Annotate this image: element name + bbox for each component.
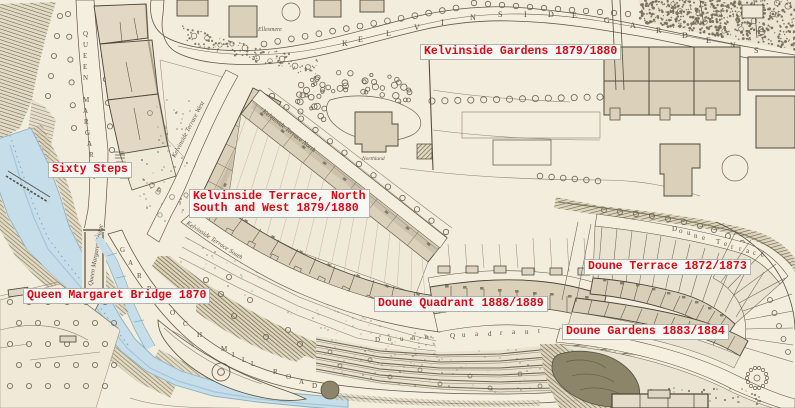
svg-text:D: D bbox=[375, 336, 380, 344]
svg-text:Ellesmere: Ellesmere bbox=[257, 27, 282, 33]
svg-text:n: n bbox=[525, 328, 529, 336]
svg-text:Q: Q bbox=[83, 30, 88, 38]
svg-text:n: n bbox=[694, 232, 698, 240]
svg-text:t: t bbox=[538, 327, 540, 335]
svg-text:L: L bbox=[251, 360, 255, 368]
svg-text:G: G bbox=[604, 16, 610, 25]
svg-text:M: M bbox=[221, 345, 228, 353]
svg-text:H: H bbox=[197, 331, 202, 339]
svg-text:o: o bbox=[388, 335, 392, 343]
svg-text:A: A bbox=[299, 378, 304, 386]
svg-text:R: R bbox=[273, 368, 278, 376]
svg-text:E: E bbox=[358, 35, 363, 44]
svg-text:G: G bbox=[120, 246, 125, 254]
svg-text:R: R bbox=[89, 151, 94, 159]
svg-text:e: e bbox=[702, 234, 705, 242]
svg-text:e: e bbox=[724, 240, 727, 248]
svg-text:N: N bbox=[470, 13, 476, 22]
svg-text:u: u bbox=[462, 331, 466, 339]
svg-text:A: A bbox=[630, 21, 636, 30]
svg-text:E: E bbox=[83, 52, 87, 60]
svg-text:D: D bbox=[548, 10, 554, 19]
svg-text:C: C bbox=[183, 320, 188, 328]
svg-text:V: V bbox=[414, 23, 420, 32]
svg-text:L: L bbox=[386, 29, 391, 38]
svg-text:A: A bbox=[128, 259, 133, 267]
svg-text:R: R bbox=[84, 118, 89, 126]
svg-text:e: e bbox=[425, 333, 428, 341]
svg-text:E: E bbox=[83, 63, 87, 71]
svg-text:D: D bbox=[312, 382, 317, 390]
svg-text:O: O bbox=[286, 373, 291, 381]
svg-text:D: D bbox=[682, 31, 688, 40]
svg-text:u: u bbox=[400, 335, 404, 343]
svg-text:R: R bbox=[137, 272, 142, 280]
svg-text:I: I bbox=[441, 18, 444, 27]
svg-text:S: S bbox=[498, 10, 502, 19]
svg-text:S: S bbox=[754, 46, 758, 55]
svg-text:L: L bbox=[242, 356, 246, 364]
svg-text:d: d bbox=[488, 330, 492, 338]
svg-text:O: O bbox=[170, 309, 175, 317]
svg-text:A: A bbox=[83, 107, 88, 115]
svg-text:A: A bbox=[87, 140, 92, 148]
svg-text:Northland: Northland bbox=[361, 156, 385, 162]
svg-text:o: o bbox=[679, 227, 683, 235]
svg-text:I: I bbox=[524, 10, 527, 19]
svg-text:G: G bbox=[85, 129, 90, 137]
svg-text:M: M bbox=[83, 96, 90, 104]
svg-text:Q: Q bbox=[450, 332, 455, 340]
svg-text:N: N bbox=[83, 74, 88, 82]
svg-text:E: E bbox=[706, 36, 711, 45]
svg-text:K: K bbox=[342, 39, 348, 48]
svg-text:c: c bbox=[753, 249, 756, 257]
svg-text:R: R bbox=[656, 26, 662, 35]
svg-text:u: u bbox=[687, 229, 691, 237]
svg-text:U: U bbox=[83, 41, 88, 49]
svg-text:T: T bbox=[716, 238, 721, 246]
svg-text:D: D bbox=[672, 225, 677, 233]
svg-text:n: n bbox=[412, 334, 416, 342]
